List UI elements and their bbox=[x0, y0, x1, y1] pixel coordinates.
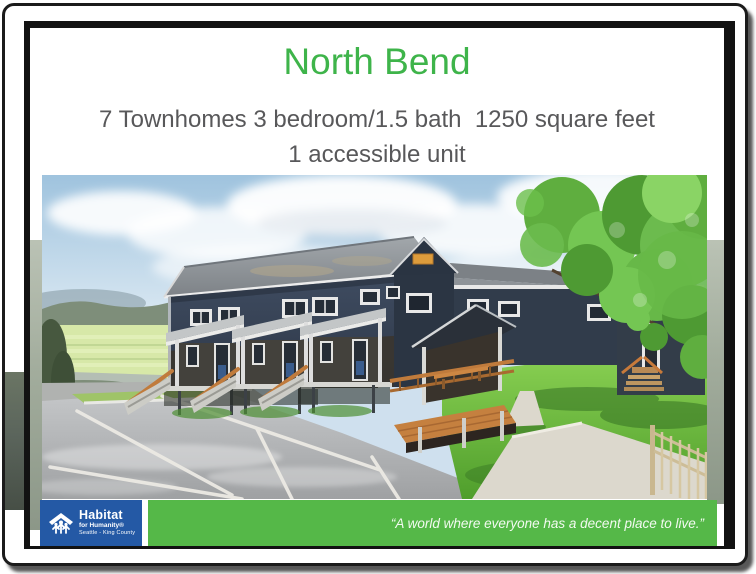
footer-bars: Habitat for Humanity® Seattle - King Cou… bbox=[40, 500, 717, 546]
habitat-logo-icon bbox=[47, 511, 75, 535]
logo-name: Habitat bbox=[79, 509, 135, 522]
tagline-quote: “A world where everyone has a decent pla… bbox=[391, 516, 704, 531]
photo-bleed-right bbox=[707, 240, 724, 504]
logo-subname: for Humanity® bbox=[79, 523, 135, 530]
slide-frame: North Bend 7 Townhomes 3 bedroom/1.5 bat… bbox=[2, 3, 748, 566]
photo-bleed-left-outer bbox=[5, 372, 26, 510]
habitat-logo-text: Habitat for Humanity® Seattle - King Cou… bbox=[79, 509, 135, 537]
habitat-logo-block: Habitat for Humanity® Seattle - King Cou… bbox=[40, 500, 142, 546]
slide-subtitle: 7 Townhomes 3 bedroom/1.5 bath 1250 squa… bbox=[30, 102, 724, 172]
subtitle-line-1: 7 Townhomes 3 bedroom/1.5 bath 1250 squa… bbox=[30, 102, 724, 137]
photo-bleed-left bbox=[30, 240, 42, 530]
logo-region: Seattle - King County bbox=[79, 531, 135, 537]
subtitle-line-2: 1 accessible unit bbox=[30, 137, 724, 172]
building-sign bbox=[413, 254, 433, 264]
townhomes-rendering-photo bbox=[42, 175, 707, 499]
page-title: North Bend bbox=[30, 40, 724, 84]
townhomes-rendering bbox=[42, 175, 707, 499]
quote-bar: “A world where everyone has a decent pla… bbox=[148, 500, 717, 546]
slide: North Bend 7 Townhomes 3 bedroom/1.5 bat… bbox=[24, 21, 735, 549]
